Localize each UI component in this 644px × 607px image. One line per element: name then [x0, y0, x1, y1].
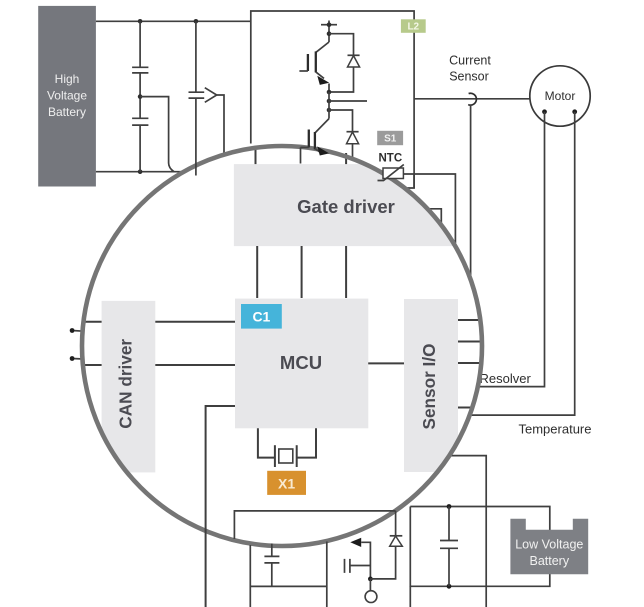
svg-text:L2: L2	[407, 21, 419, 32]
svg-text:Motor: Motor	[545, 89, 576, 103]
svg-text:X1: X1	[278, 475, 295, 491]
svg-text:C1: C1	[252, 309, 270, 325]
svg-text:High: High	[55, 72, 80, 86]
svg-text:Battery: Battery	[48, 105, 86, 119]
svg-text:MCU: MCU	[280, 352, 322, 373]
svg-text:Sensor: Sensor	[449, 70, 489, 84]
svg-text:Low Voltage: Low Voltage	[515, 538, 583, 552]
svg-text:Current: Current	[449, 54, 491, 68]
svg-text:Battery: Battery	[529, 554, 569, 568]
svg-text:Temperature: Temperature	[519, 422, 592, 437]
svg-text:Gate driver: Gate driver	[297, 196, 395, 217]
svg-text:Voltage: Voltage	[47, 89, 87, 103]
svg-text:S1: S1	[384, 134, 397, 145]
svg-text:Resolver: Resolver	[480, 371, 532, 386]
svg-text:CAN driver: CAN driver	[116, 339, 136, 429]
svg-text:NTC: NTC	[379, 153, 403, 165]
svg-text:Sensor I/O: Sensor I/O	[419, 344, 439, 430]
